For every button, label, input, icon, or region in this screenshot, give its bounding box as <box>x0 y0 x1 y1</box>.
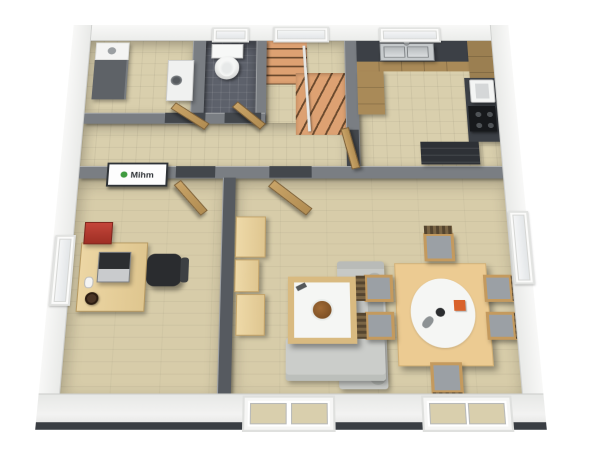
logo-text: Mihm <box>130 170 154 179</box>
scene-3d: Mihm <box>35 25 547 430</box>
wall-unit-cabinet-1 <box>235 216 266 257</box>
dining-chair-north <box>423 233 455 261</box>
tall-cabinet-top-vent <box>95 42 130 60</box>
wc-window <box>212 27 250 42</box>
front-window-right <box>421 396 514 432</box>
front-window-left <box>242 396 336 432</box>
dining-chair-west-2 <box>365 312 395 340</box>
coffee-table <box>288 277 358 344</box>
logo-green-icon <box>121 171 128 177</box>
wall-wc-stairs <box>255 41 266 123</box>
floorplan-canvas: Mihm <box>0 0 600 450</box>
doorway-living-room <box>269 166 311 178</box>
dining-chair-south <box>430 362 464 393</box>
orange-box <box>454 300 466 311</box>
kitchen-double-sink <box>380 43 435 61</box>
dark-bottle <box>435 308 445 317</box>
kitchen-cabinets-left <box>357 71 385 114</box>
kitchen-tall-cabinet <box>467 41 494 78</box>
dining-chair-west-1 <box>364 275 394 302</box>
wall-unit-cabinet-3 <box>235 294 265 336</box>
kitchen-dark-sideboard <box>420 142 480 165</box>
office-chair <box>146 254 182 287</box>
doorway-office <box>176 166 216 178</box>
red-printer <box>83 222 113 244</box>
dining-chair-east-2 <box>486 312 518 340</box>
kitchen-window <box>379 27 441 42</box>
dining-chair-east-1 <box>483 275 514 302</box>
coffee-machine <box>469 80 496 103</box>
sofa-chaise <box>286 338 386 381</box>
laptop <box>97 252 132 283</box>
washing-machine <box>166 60 194 101</box>
staircase-winder-steps <box>296 73 347 135</box>
cooktop <box>468 106 497 131</box>
wall-sign-logo: Mihm <box>106 163 169 187</box>
building: Mihm <box>35 25 547 430</box>
staircase-window <box>273 27 329 43</box>
wall-unit-cabinet-2 <box>234 259 259 292</box>
